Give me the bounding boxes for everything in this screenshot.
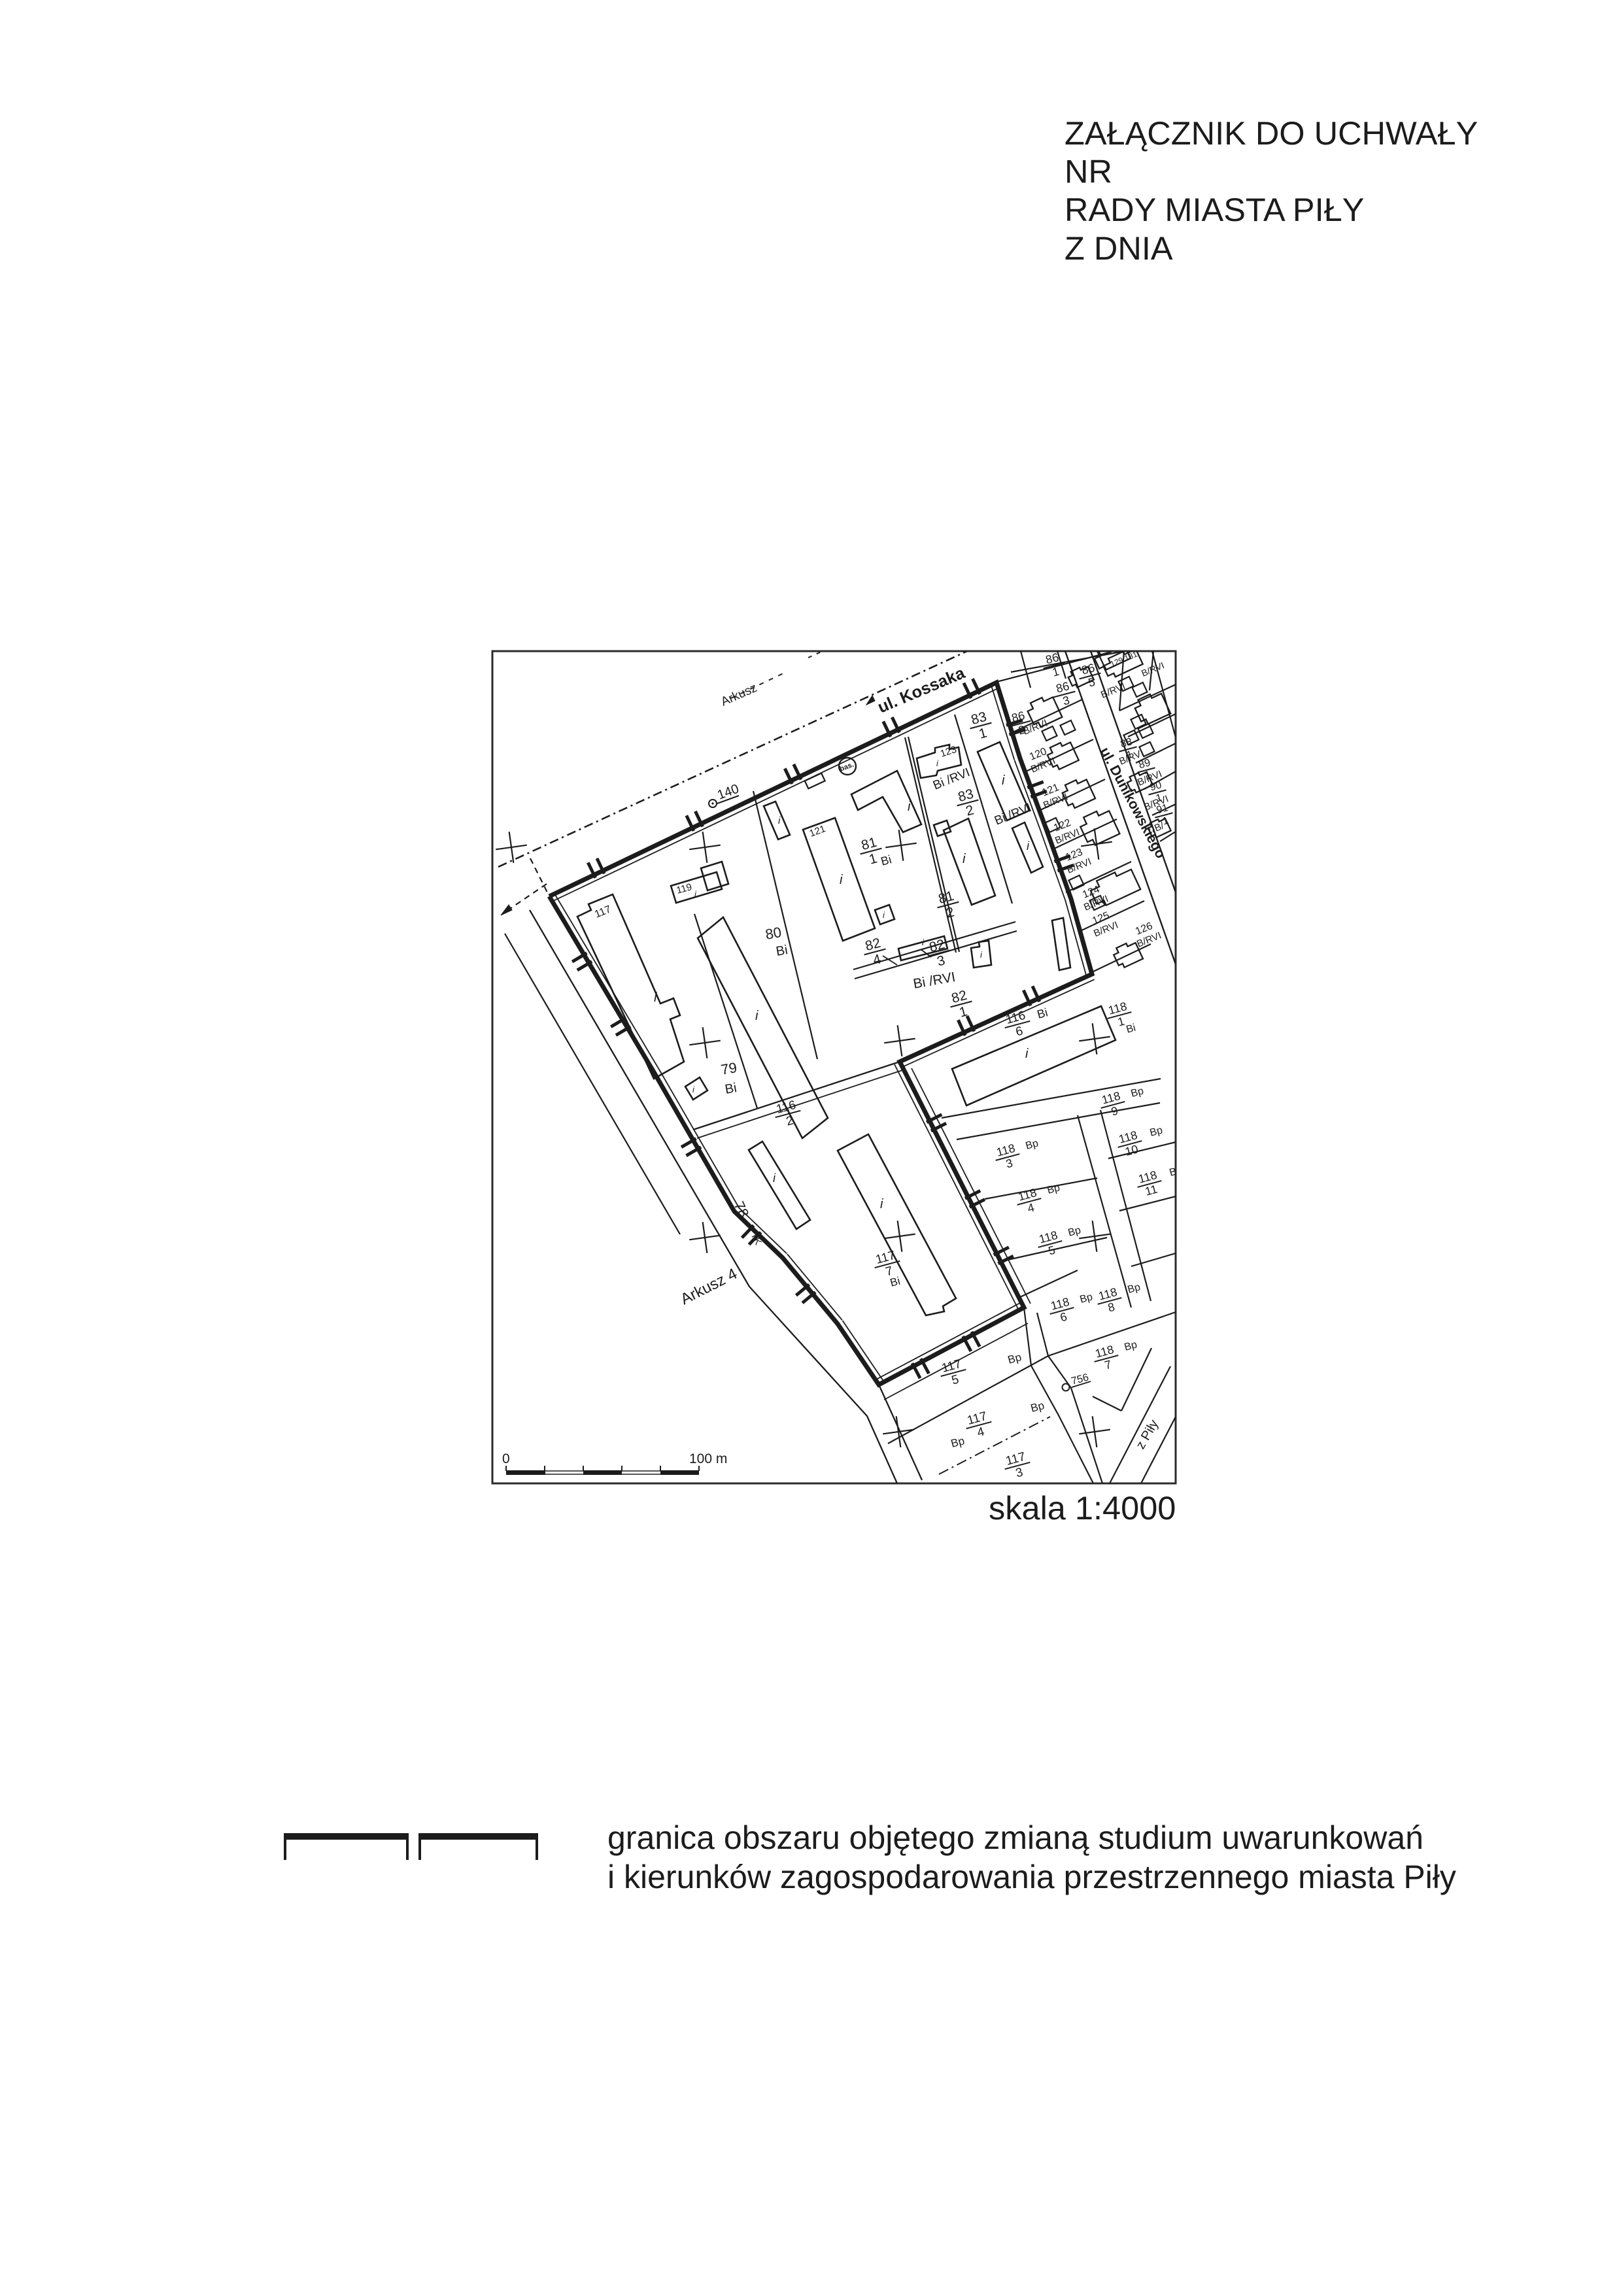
svg-text:80: 80 — [764, 924, 783, 943]
svg-text:i: i — [1002, 773, 1005, 788]
svg-text:skala 1:4000: skala 1:4000 — [989, 1489, 1176, 1527]
svg-text:NR: NR — [1065, 153, 1112, 190]
svg-text:i: i — [654, 990, 657, 1005]
svg-text:i: i — [1025, 1047, 1029, 1061]
svg-text:i: i — [880, 1197, 883, 1211]
svg-text:i: i — [963, 852, 966, 866]
svg-text:i: i — [840, 873, 843, 887]
svg-text:0: 0 — [502, 1451, 510, 1466]
svg-text:Z DNIA: Z DNIA — [1065, 229, 1173, 267]
svg-text:Bi: Bi — [724, 1081, 738, 1097]
svg-text:i: i — [908, 800, 911, 814]
svg-text:RADY MIASTA PIŁY: RADY MIASTA PIŁY — [1065, 191, 1364, 228]
svg-text:100 m: 100 m — [689, 1451, 727, 1466]
svg-text:79: 79 — [720, 1059, 738, 1078]
svg-text:i: i — [755, 1009, 758, 1023]
svg-text:ZAŁĄCZNIK DO UCHWAŁY: ZAŁĄCZNIK DO UCHWAŁY — [1065, 114, 1478, 152]
svg-text:i kierunków zagospodarowania p: i kierunków zagospodarowania przestrzenn… — [607, 1859, 1456, 1895]
svg-text:granica obszaru objętego zmian: granica obszaru objętego zmianą studium … — [607, 1819, 1423, 1856]
svg-text:Bi: Bi — [775, 943, 789, 959]
